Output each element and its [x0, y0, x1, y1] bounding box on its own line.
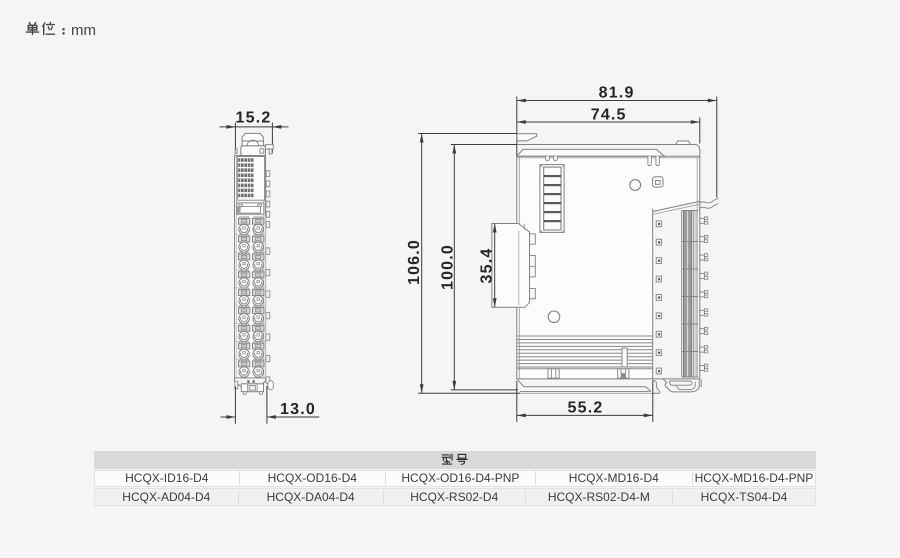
- svg-text:81.9: 81.9: [599, 84, 635, 101]
- svg-text:55.2: 55.2: [568, 399, 604, 416]
- svg-text:35.4: 35.4: [478, 248, 495, 284]
- svg-text:13.0: 13.0: [280, 401, 316, 418]
- svg-text:100.0: 100.0: [439, 244, 456, 290]
- svg-text:106.0: 106.0: [406, 239, 423, 285]
- svg-text:74.5: 74.5: [591, 107, 627, 124]
- svg-text:15.2: 15.2: [236, 110, 272, 127]
